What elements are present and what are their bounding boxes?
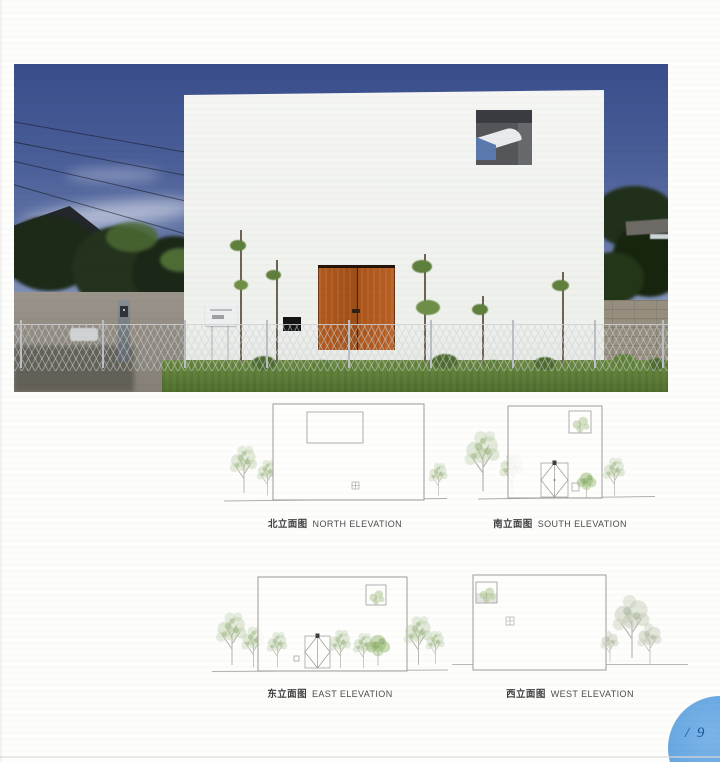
fence-post — [348, 320, 350, 368]
west-elevation-drawing — [450, 565, 690, 680]
intercom-panel — [120, 306, 128, 317]
page-edge-bottom — [0, 756, 720, 758]
south-elevation-caption: 南立面图SOUTH ELEVATION — [450, 516, 670, 530]
fence-post — [266, 320, 268, 368]
sapling-leaves — [552, 280, 569, 291]
fence-post — [102, 320, 104, 368]
page-number-badge: / 9 — [668, 696, 720, 762]
fence-post — [430, 320, 432, 368]
chain-link-fence — [14, 324, 668, 371]
neighbor-roof-right — [626, 218, 668, 235]
west-elevation-caption: 西立面图WEST ELEVATION — [450, 686, 690, 700]
east-elevation-caption: 东立面图EAST ELEVATION — [210, 686, 450, 700]
mailbox-slot — [210, 309, 232, 311]
east-caption-en: EAST ELEVATION — [312, 689, 393, 699]
south-caption-cn: 南立面图 — [493, 519, 533, 530]
north-caption-en: NORTH ELEVATION — [313, 519, 403, 529]
neighbor-wall-glimpse — [650, 234, 668, 239]
sapling-leaves — [472, 304, 488, 315]
tree-mass-left — [106, 222, 158, 252]
west-elevation-figure — [450, 565, 690, 680]
sapling-leaves — [266, 270, 281, 280]
sapling-leaves — [234, 280, 248, 290]
page-edge-left — [0, 0, 2, 762]
north-elevation-caption: 北立面图NORTH ELEVATION — [220, 516, 450, 530]
mailbox — [205, 304, 237, 326]
west-caption-cn: 西立面图 — [506, 689, 546, 700]
sapling-leaves — [412, 260, 432, 273]
west-caption-en: WEST ELEVATION — [551, 689, 634, 699]
east-caption-cn: 东立面图 — [267, 689, 307, 700]
north-elevation-drawing — [220, 395, 450, 510]
intercom-button — [123, 309, 125, 311]
fence-post — [20, 320, 22, 368]
facade-square-opening — [476, 110, 532, 165]
south-elevation-figure — [450, 395, 670, 510]
opening-shadow — [476, 110, 532, 123]
north-caption-cn: 北立面图 — [268, 519, 308, 530]
sapling-leaves — [416, 300, 440, 315]
mailbox-label — [212, 315, 224, 319]
east-elevation-figure — [210, 565, 450, 680]
cloud — [66, 168, 161, 182]
page-number: / 9 — [685, 725, 706, 742]
house-exterior-photo — [14, 64, 668, 392]
book-page: 北立面图NORTH ELEVATION 南立面图SOUTH ELEVATION — [0, 0, 720, 762]
fence-post — [512, 320, 514, 368]
fence-post — [662, 320, 664, 368]
north-elevation-figure — [220, 395, 450, 510]
door-handle — [352, 309, 360, 313]
sapling-leaves — [230, 240, 246, 251]
south-elevation-drawing — [450, 395, 670, 510]
south-caption-en: SOUTH ELEVATION — [538, 519, 627, 529]
fence-post — [184, 320, 186, 368]
fence-post — [594, 320, 596, 368]
east-elevation-drawing — [210, 565, 450, 680]
